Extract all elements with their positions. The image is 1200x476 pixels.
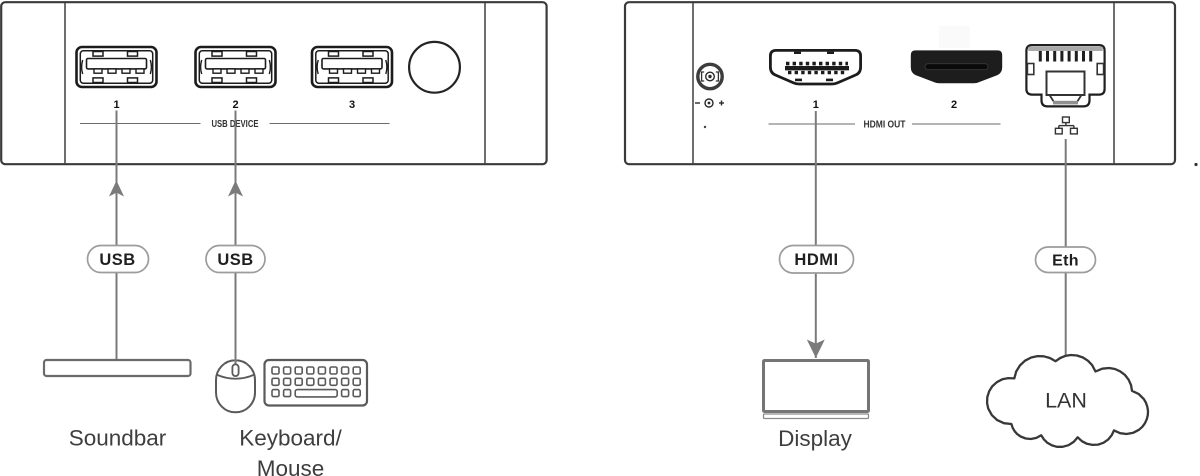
svg-text:HDMI OUT: HDMI OUT bbox=[864, 120, 906, 131]
svg-text:1: 1 bbox=[113, 99, 119, 111]
svg-text:Keyboard/: Keyboard/ bbox=[239, 426, 342, 451]
svg-text:1: 1 bbox=[813, 99, 819, 111]
svg-text:Eth: Eth bbox=[1052, 253, 1079, 270]
svg-text:Soundbar: Soundbar bbox=[69, 426, 167, 451]
svg-text:Mouse: Mouse bbox=[257, 456, 325, 476]
svg-text:LAN: LAN bbox=[1045, 389, 1087, 413]
svg-text:USB: USB bbox=[99, 251, 135, 269]
svg-text:Display: Display bbox=[778, 426, 853, 451]
svg-text:HDMI: HDMI bbox=[794, 251, 838, 269]
svg-text:USB: USB bbox=[217, 251, 253, 269]
svg-text:3: 3 bbox=[349, 99, 355, 111]
svg-text:2: 2 bbox=[232, 99, 238, 111]
svg-text:2: 2 bbox=[951, 99, 957, 111]
